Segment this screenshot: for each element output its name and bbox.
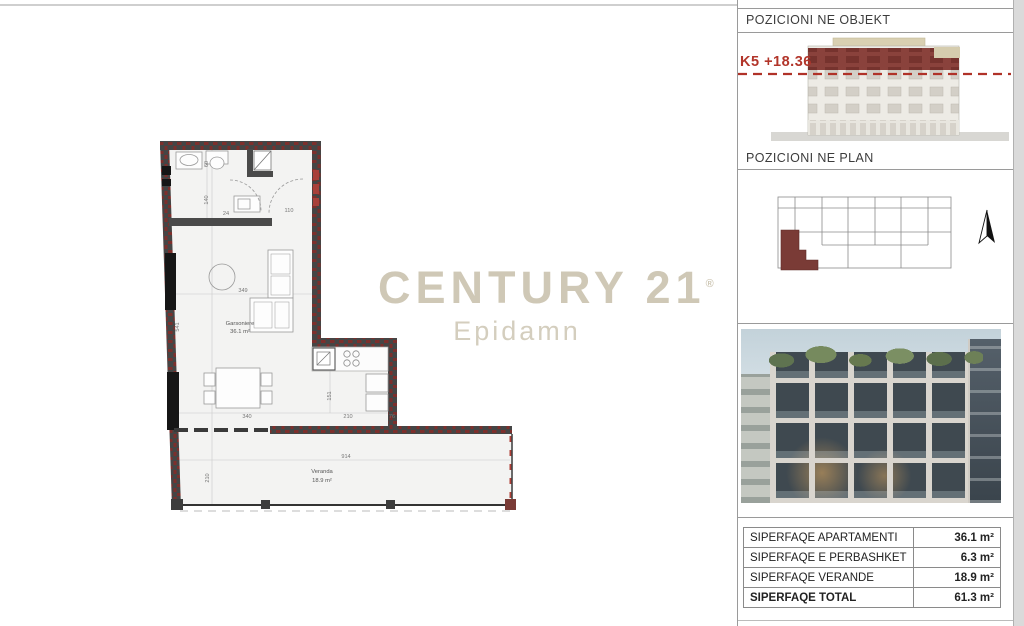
building-photo-section [738,324,1014,518]
level-label: K5 +18.36 [740,54,812,70]
areas-table: SIPERFAQE APARTAMENTI 36.1 m² SIPERFAQE … [743,527,1001,608]
area-value: 18.9 m² [913,568,1000,588]
section-title-object: POZICIONI NE OBJEKT [738,8,1014,33]
table-row-total: SIPERFAQE TOTAL 61.3 m² [744,588,1001,608]
areas-table-section: SIPERFAQE APARTAMENTI 36.1 m² SIPERFAQE … [738,517,1014,621]
table-row: SIPERFAQE E PERBASHKET 6.3 m² [744,548,1001,568]
dim-914: 914 [341,454,350,460]
room2-name: Veranda [311,469,333,475]
room1-name: Garsoniere [226,321,255,327]
dim-210-veranda: 210 [205,473,211,482]
screen-edge-strip [1013,0,1024,626]
info-sidebar: POZICIONI NE OBJEKT [737,0,1014,626]
dim-140: 140 [204,195,210,204]
area-label: SIPERFAQE TOTAL [744,588,914,608]
table-row: SIPERFAQE VERANDE 18.9 m² [744,568,1001,588]
area-value: 36.1 m² [913,528,1000,548]
plan-position-section [738,170,1014,324]
dim-110: 110 [285,208,294,214]
photo-main-facade [770,352,978,503]
north-arrow-icon [979,210,995,243]
dim-210-kitchen: 210 [343,414,352,420]
room2-area: 18.9 m² [312,478,332,484]
registered-mark: ® [706,278,714,290]
dim-24: 24 [223,211,229,217]
dim-151: 151 [327,391,333,400]
floor-plan-drawing: Garsoniere 36.1 m² Veranda 18.9 m² 60 14… [150,130,530,530]
area-value: 61.3 m² [913,588,1000,608]
dim-76: 76 [389,414,395,420]
plan-position-drawing [738,170,1014,322]
dim-349: 349 [238,288,247,294]
building-photo [741,329,1001,503]
dim-340: 340 [242,414,251,420]
area-label: SIPERFAQE E PERBASHKET [744,548,914,568]
area-value: 6.3 m² [913,548,1000,568]
table-row: SIPERFAQE APARTAMENTI 36.1 m² [744,528,1001,548]
section-title-plan: POZICIONI NE PLAN [738,148,1014,170]
dim-541: 541 [175,322,181,331]
area-label: SIPERFAQE APARTAMENTI [744,528,914,548]
dim-60: 60 [204,161,210,167]
entry-door-marks [313,170,319,206]
page: CENTURY 21® Epidamn [0,0,1024,626]
building-elevation-section: K5 +18.36 [738,32,1014,148]
room1-area: 36.1 m² [230,329,250,335]
building-elevation-drawing [738,32,1014,148]
photo-roof-greenery [764,343,982,373]
area-label: SIPERFAQE VERANDE [744,568,914,588]
